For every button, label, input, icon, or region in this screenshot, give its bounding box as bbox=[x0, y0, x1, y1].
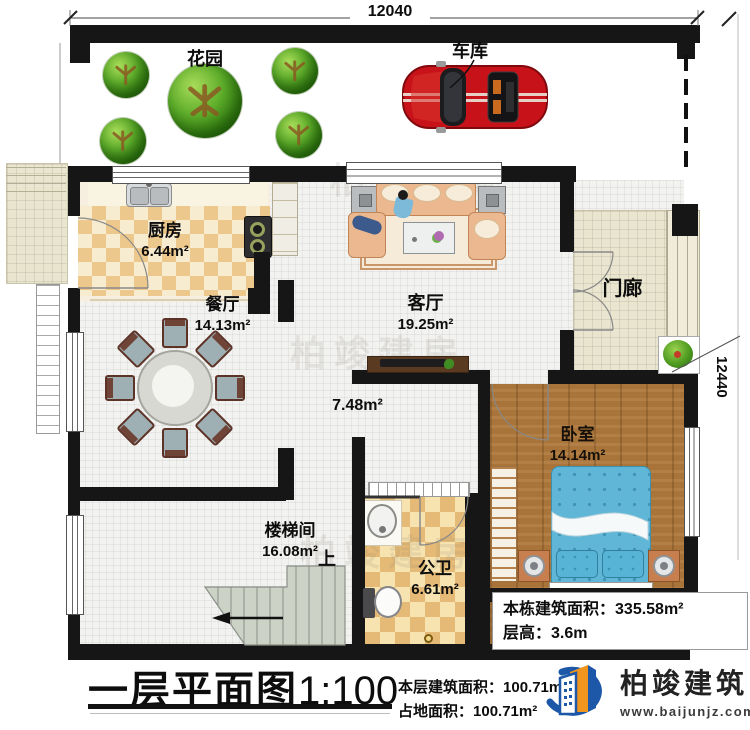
title-underline-thin bbox=[90, 713, 390, 714]
stair-up-label: 上 bbox=[312, 548, 342, 571]
floor-height-value: 3.6m bbox=[551, 625, 587, 642]
building-info-box: 本栋建筑面积：335.58m² 层高：3.6m bbox=[492, 592, 748, 650]
room-label-bathroom: 公卫 6.61m² bbox=[380, 558, 490, 600]
footprint-stat: 占地面积：100.71m² bbox=[398, 700, 537, 721]
room-label-living: 客厅 19.25m² bbox=[368, 292, 483, 335]
total-area-value: 335.58m² bbox=[615, 601, 684, 618]
room-label-garage: 车库 bbox=[435, 40, 505, 63]
logo-company-name: 柏竣建筑 bbox=[620, 662, 750, 702]
logo-website: www.baijunjz.com bbox=[620, 704, 750, 719]
room-label-porch: 门廊 bbox=[585, 276, 660, 302]
room-label-kitchen: 厨房 6.44m² bbox=[105, 220, 225, 262]
logo-building-icon bbox=[540, 656, 612, 724]
room-label-garden: 花园 bbox=[170, 48, 240, 71]
room-label-dining: 餐厅 14.13m² bbox=[165, 294, 280, 336]
dimension-top: 12040 bbox=[350, 2, 430, 23]
floor-height-label: 层高： bbox=[503, 625, 551, 642]
company-logo: 柏竣建筑 www.baijunjz.com bbox=[540, 656, 750, 724]
room-label-hallway: 7.48m² bbox=[300, 396, 415, 417]
floor-plan-canvas: 柏竣建房 柏竣建房 柏竣建房 bbox=[0, 0, 750, 730]
title-underline bbox=[88, 704, 392, 709]
dimension-right: 12440 bbox=[712, 356, 732, 398]
room-label-bedroom: 卧室 14.14m² bbox=[520, 424, 635, 466]
total-area-label: 本栋建筑面积： bbox=[503, 601, 615, 618]
